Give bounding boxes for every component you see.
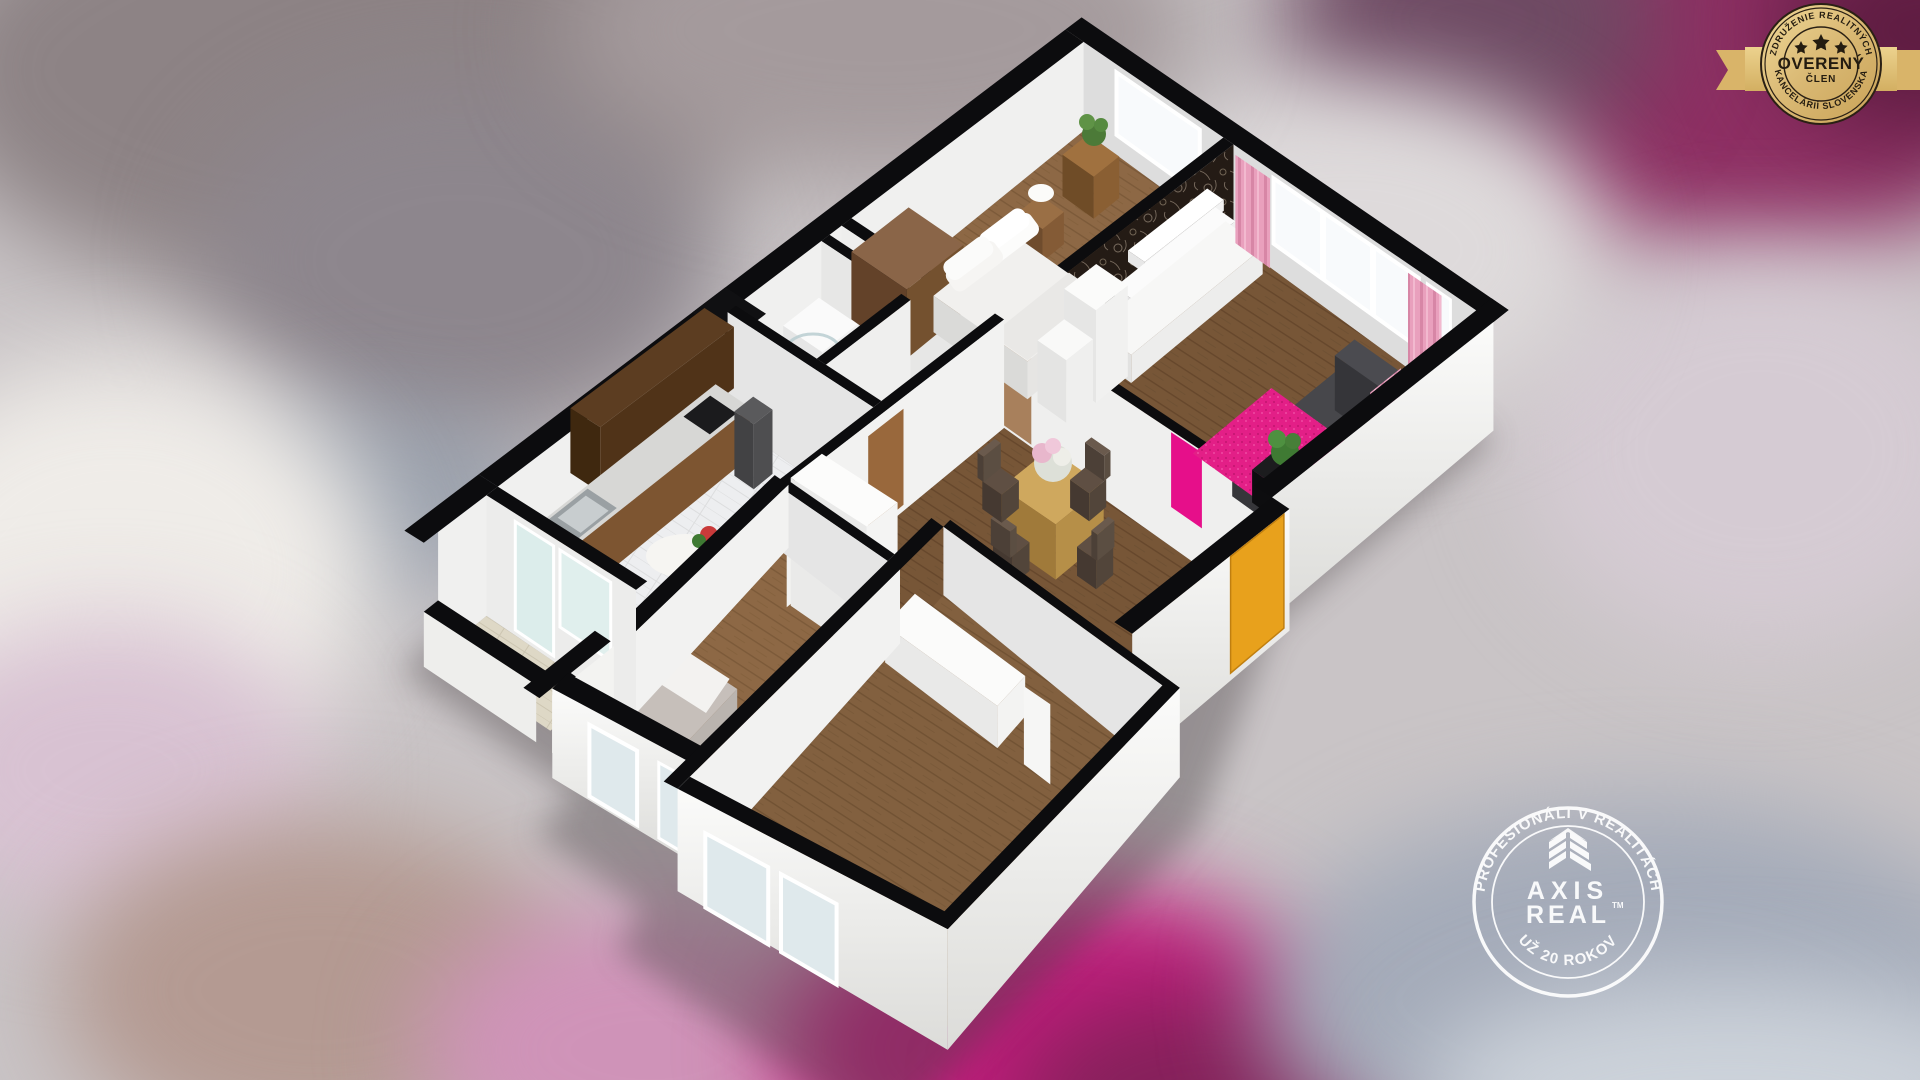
svg-text:ČLEN: ČLEN [1806,72,1836,85]
svg-text:UŽ 20 ROKOV: UŽ 20 ROKOV [1515,932,1621,970]
svg-text:OVERENÝ: OVERENÝ [1778,54,1865,73]
svg-text:REAL: REAL [1526,901,1610,929]
svg-text:TM: TM [1612,901,1624,910]
